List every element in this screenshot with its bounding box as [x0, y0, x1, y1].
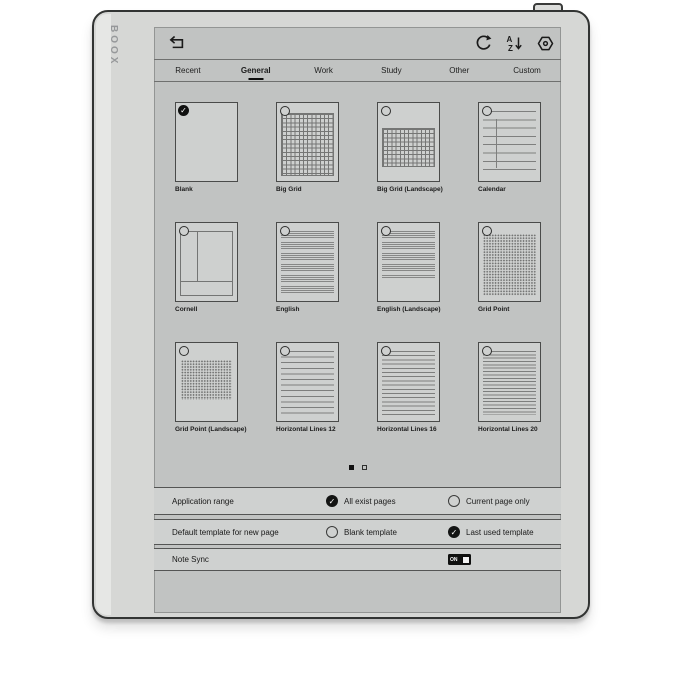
tab-work[interactable]: Work — [290, 60, 358, 81]
template-radio-icon — [381, 106, 391, 116]
option-label: Blank template — [344, 528, 397, 537]
template-item-blank[interactable]: Blank — [175, 102, 238, 193]
svg-text:Z: Z — [508, 44, 513, 52]
page-dot[interactable] — [349, 465, 354, 470]
template-pattern — [181, 360, 232, 400]
category-tabs: Recent General Work Study Other Custom — [154, 60, 561, 82]
template-item-big-grid[interactable]: Big Grid — [276, 102, 339, 193]
tab-custom[interactable]: Custom — [493, 60, 561, 81]
template-item-grid-point-landscape[interactable]: Grid Point (Landscape) — [175, 342, 238, 433]
back-icon[interactable] — [166, 33, 186, 53]
template-label: English (Landscape) — [377, 306, 440, 313]
template-radio-icon — [179, 226, 189, 236]
sort-az-icon[interactable]: A Z — [504, 33, 524, 53]
setting-label: Default template for new page — [172, 528, 279, 537]
template-label: Blank — [175, 186, 238, 193]
template-pattern — [281, 351, 334, 415]
option-last-used-template[interactable]: Last used template — [448, 526, 534, 538]
tab-study[interactable]: Study — [357, 60, 425, 81]
setting-label: Application range — [172, 497, 234, 506]
option-all-exist-pages[interactable]: All exist pages — [326, 495, 396, 507]
template-radio-icon — [280, 346, 290, 356]
setting-row-default-template: Default template for new page Blank temp… — [154, 519, 561, 545]
template-item-cornell[interactable]: Cornell — [175, 222, 238, 313]
template-radio-icon — [179, 346, 189, 356]
template-thumbnail — [478, 102, 541, 182]
template-item-horizontal-lines-16[interactable]: Horizontal Lines 16 — [377, 342, 440, 433]
template-thumbnail — [478, 222, 541, 302]
device-frame: BOOX — [92, 10, 590, 619]
template-label: Grid Point (Landscape) — [175, 426, 238, 433]
settings-icon[interactable] — [535, 33, 555, 53]
tab-label: Work — [314, 66, 333, 75]
tab-other[interactable]: Other — [425, 60, 493, 81]
toggle-knob — [462, 556, 470, 564]
screenshot-canvas: BOOX — [0, 0, 700, 700]
template-pattern — [483, 351, 536, 415]
template-thumbnail — [276, 342, 339, 422]
template-radio-icon — [482, 106, 492, 116]
template-pattern — [180, 231, 233, 296]
template-label: Grid Point — [478, 306, 541, 313]
page-indicator — [154, 465, 561, 470]
option-label: All exist pages — [344, 497, 396, 506]
toolbar-right-icons: A Z — [473, 33, 555, 53]
tab-general[interactable]: General — [222, 60, 290, 81]
template-radio-icon — [482, 226, 492, 236]
template-pattern — [483, 111, 536, 175]
option-label: Current page only — [466, 497, 530, 506]
radio-icon — [326, 526, 338, 538]
refresh-icon[interactable] — [473, 33, 493, 53]
template-label: Horizontal Lines 12 — [276, 426, 339, 433]
note-sync-toggle[interactable]: ON — [448, 554, 471, 565]
template-item-horizontal-lines-20[interactable]: Horizontal Lines 20 — [478, 342, 541, 433]
template-label: Big Grid — [276, 186, 339, 193]
template-item-big-grid-landscape[interactable]: Big Grid (Landscape) — [377, 102, 440, 193]
tab-recent[interactable]: Recent — [154, 60, 222, 81]
template-label: Calendar — [478, 186, 541, 193]
template-radio-icon — [178, 105, 189, 116]
template-thumbnail — [175, 342, 238, 422]
template-radio-icon — [381, 346, 391, 356]
tab-label: Custom — [513, 66, 541, 75]
template-thumbnail — [175, 222, 238, 302]
toggle-on-label: ON — [449, 557, 458, 563]
template-label: Cornell — [175, 306, 238, 313]
template-pattern — [382, 128, 435, 167]
eink-screen: A Z Recent — [154, 27, 561, 613]
radio-icon — [448, 495, 460, 507]
template-thumbnail — [478, 342, 541, 422]
template-radio-icon — [280, 226, 290, 236]
top-toolbar: A Z — [154, 27, 561, 60]
template-thumbnail — [377, 342, 440, 422]
template-thumbnail — [377, 102, 440, 182]
tab-label: Study — [381, 66, 401, 75]
tab-label: General — [241, 66, 271, 75]
template-thumbnail — [175, 102, 238, 182]
template-radio-icon — [280, 106, 290, 116]
template-radio-icon — [482, 346, 492, 356]
setting-row-note-sync: Note Sync ON — [154, 548, 561, 571]
template-thumbnail — [276, 102, 339, 182]
template-radio-icon — [381, 226, 391, 236]
template-pattern — [281, 231, 334, 295]
template-thumbnail — [377, 222, 440, 302]
page-dot[interactable] — [362, 465, 367, 470]
setting-label: Note Sync — [172, 555, 209, 564]
setting-row-application-range: Application range All exist pages Curren… — [154, 487, 561, 515]
template-pattern — [382, 351, 435, 415]
option-label: Last used template — [466, 528, 534, 537]
tab-label: Other — [449, 66, 469, 75]
template-label: Horizontal Lines 16 — [377, 426, 440, 433]
template-pattern — [483, 234, 536, 296]
template-pattern — [281, 113, 334, 176]
tab-label: Recent — [175, 66, 200, 75]
option-blank-template[interactable]: Blank template — [326, 526, 397, 538]
template-pattern — [382, 231, 435, 279]
radio-icon — [448, 526, 460, 538]
template-grid: Blank Big Grid Big Grid (Landscape) — [175, 102, 541, 433]
template-item-grid-point[interactable]: Grid Point — [478, 222, 541, 313]
template-item-english[interactable]: English — [276, 222, 339, 313]
template-label: Horizontal Lines 20 — [478, 426, 541, 433]
brand-logo: BOOX — [108, 25, 119, 66]
template-thumbnail — [276, 222, 339, 302]
template-item-horizontal-lines-12[interactable]: Horizontal Lines 12 — [276, 342, 339, 433]
template-label: English — [276, 306, 339, 313]
template-label: Big Grid (Landscape) — [377, 186, 440, 193]
radio-icon — [326, 495, 338, 507]
svg-text:A: A — [507, 35, 513, 44]
template-item-calendar[interactable]: Calendar — [478, 102, 541, 193]
template-item-english-landscape[interactable]: English (Landscape) — [377, 222, 440, 313]
option-current-page-only[interactable]: Current page only — [448, 495, 530, 507]
